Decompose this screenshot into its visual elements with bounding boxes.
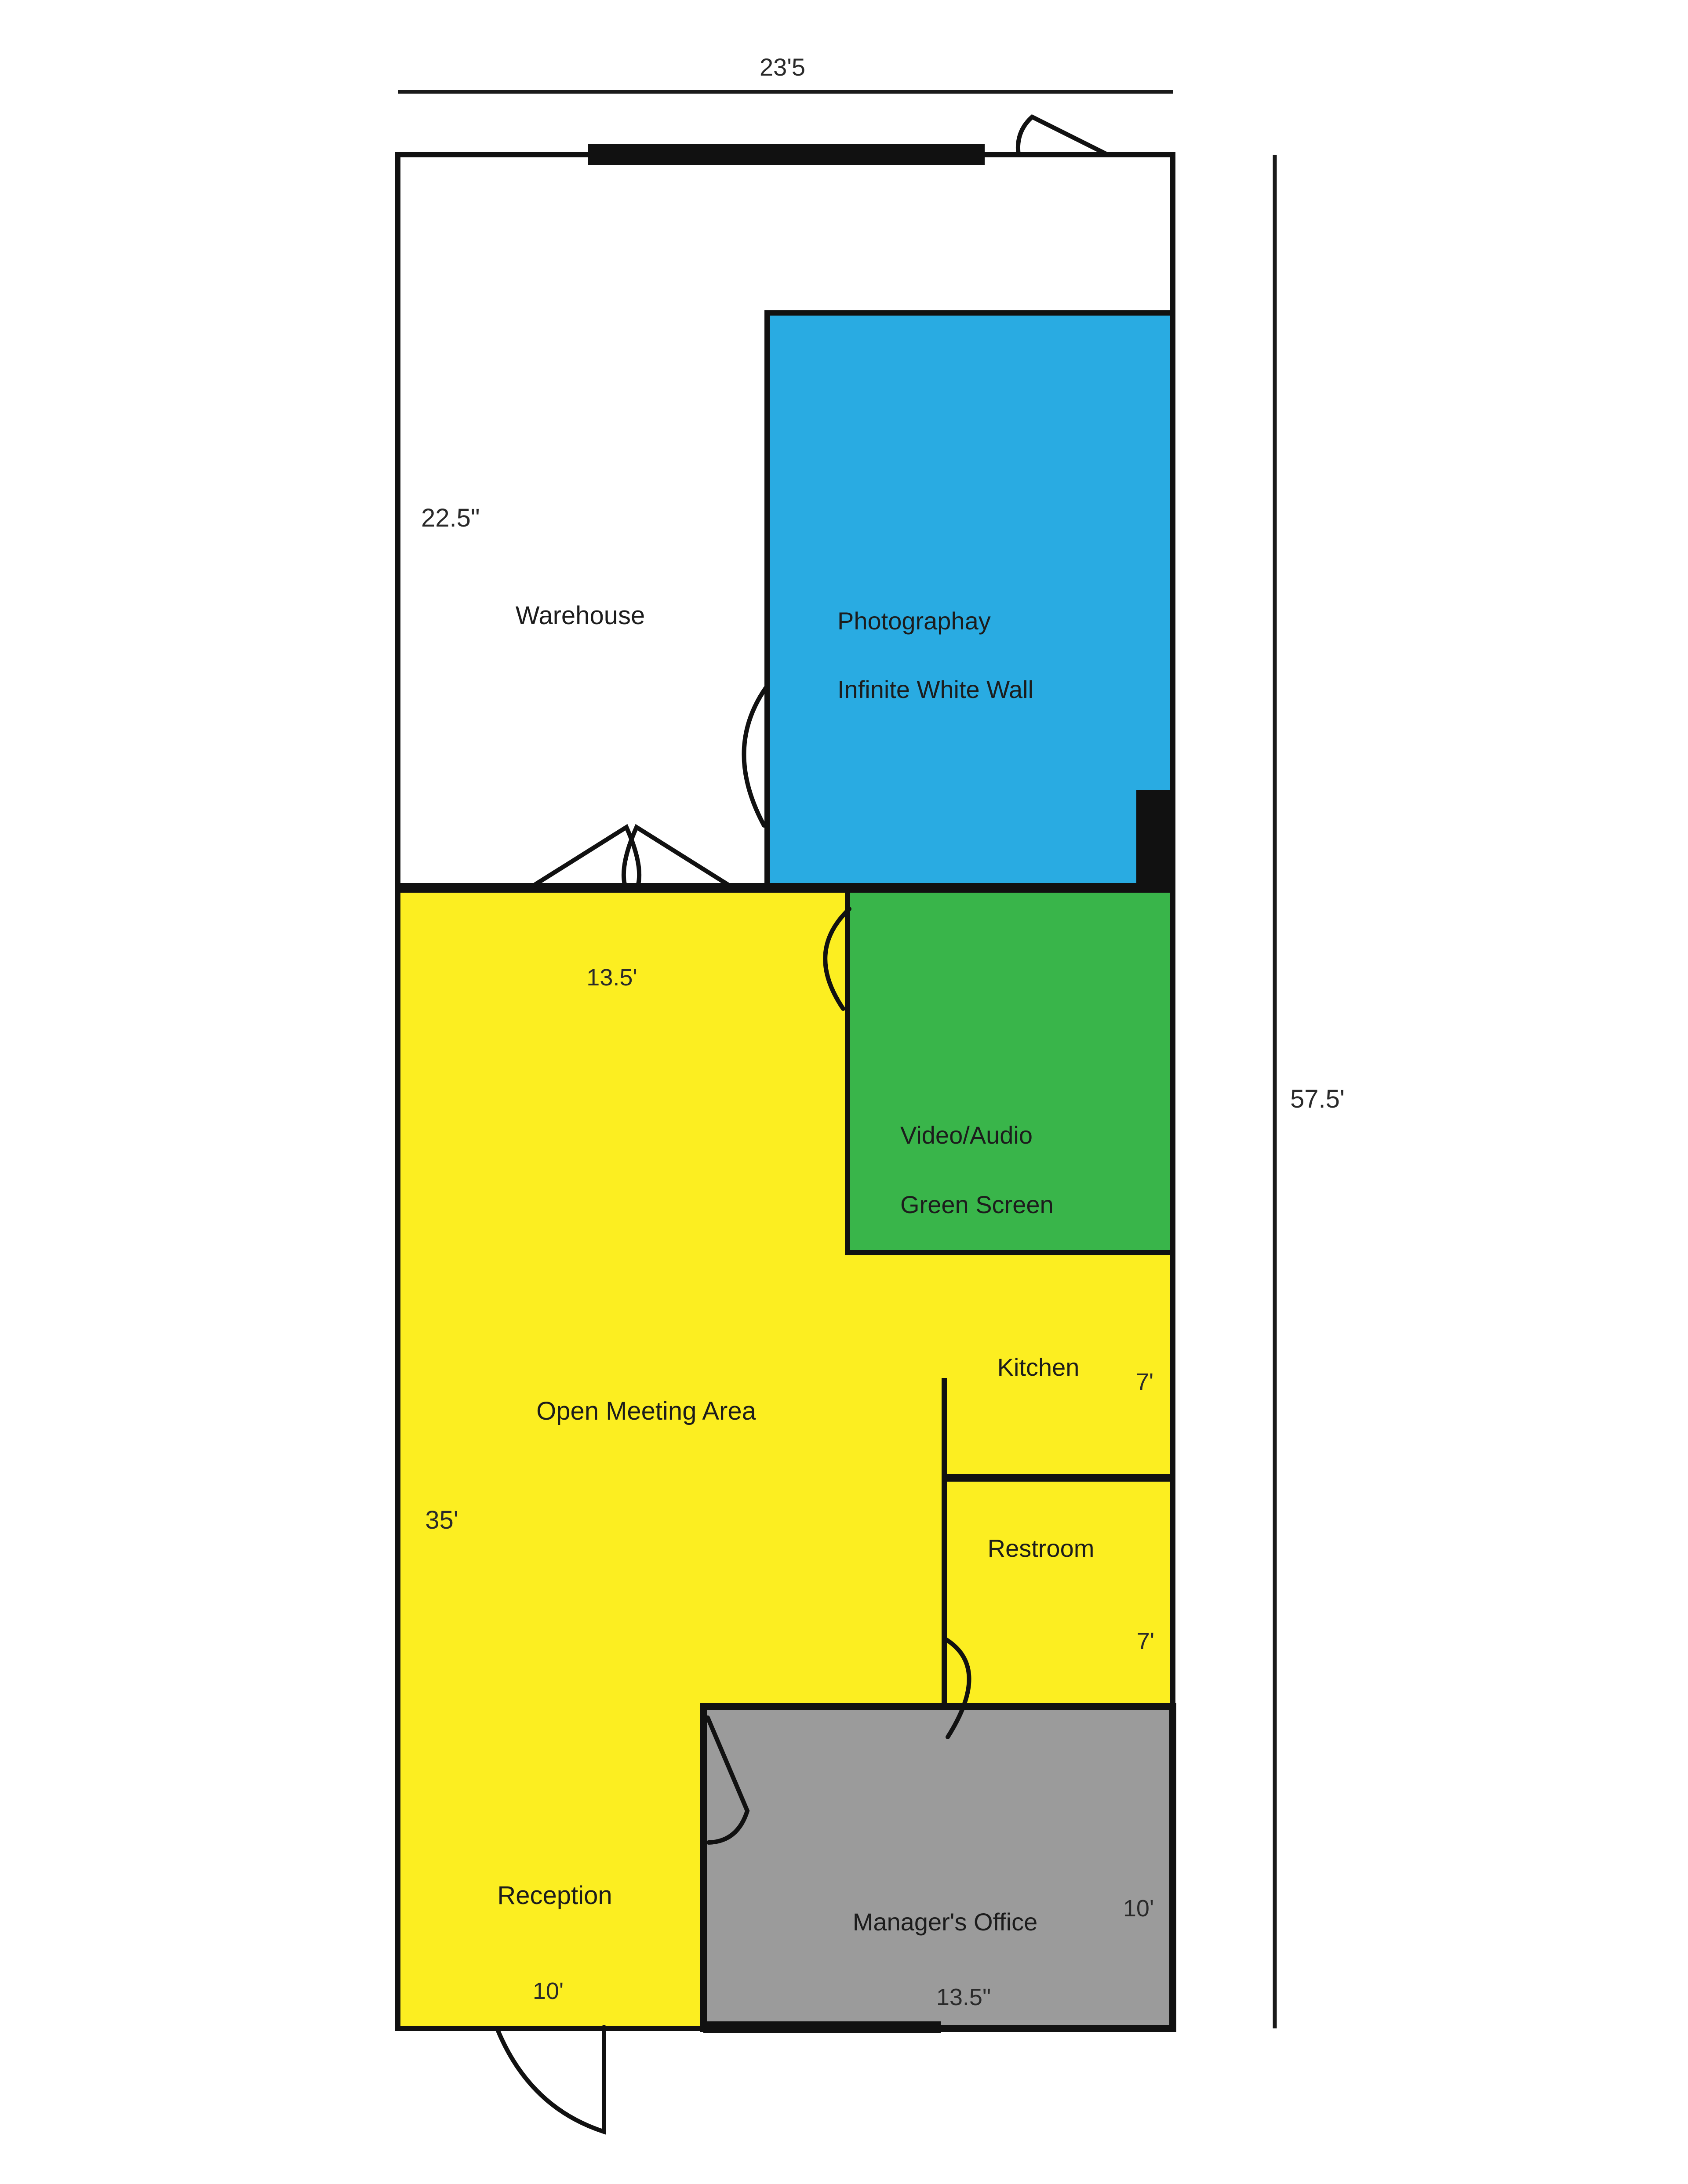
restroom-label: Restroom <box>988 1534 1095 1562</box>
photography-label-line1: Photographay <box>837 607 991 635</box>
reception-width-label: 10' <box>533 1978 564 2004</box>
overall-width-label: 23'5 <box>760 53 805 81</box>
kitchen-label: Kitchen <box>997 1353 1080 1381</box>
managers-office-room <box>703 1706 1173 2028</box>
floor-plan-canvas: 23'5 57.5' 22.5" Warehouse Photographay … <box>0 0 1688 2184</box>
photography-label-line2: Infinite White Wall <box>837 676 1033 703</box>
restroom-depth-label: 7' <box>1137 1628 1154 1654</box>
floor-plan-drawing: 23'5 57.5' 22.5" Warehouse Photographay … <box>0 0 1688 2184</box>
kitchen-depth-label: 7' <box>1136 1369 1153 1395</box>
open-meeting-area-label: Open Meeting Area <box>536 1397 757 1425</box>
green-screen-label-line1: Video/Audio <box>900 1121 1033 1149</box>
green-screen-label-line2: Green Screen <box>900 1191 1054 1218</box>
meeting-width-label: 13.5' <box>586 964 637 991</box>
managers-office-label: Manager's Office <box>853 1908 1038 1936</box>
reception-label: Reception <box>497 1881 612 1910</box>
office-width-label: 13.5" <box>936 1984 991 2010</box>
column-block <box>1136 790 1173 888</box>
door-swing-entry <box>498 2027 604 2132</box>
warehouse-width-label: 22.5" <box>421 504 480 532</box>
overall-height-label: 57.5' <box>1290 1085 1345 1113</box>
photography-room <box>767 313 1173 888</box>
warehouse-label: Warehouse <box>516 601 645 630</box>
door-swing-top-right <box>1018 117 1108 155</box>
loading-dock-door-bar <box>588 144 985 165</box>
meeting-height-label: 35' <box>425 1506 458 1534</box>
office-height-label: 10' <box>1123 1895 1154 1922</box>
